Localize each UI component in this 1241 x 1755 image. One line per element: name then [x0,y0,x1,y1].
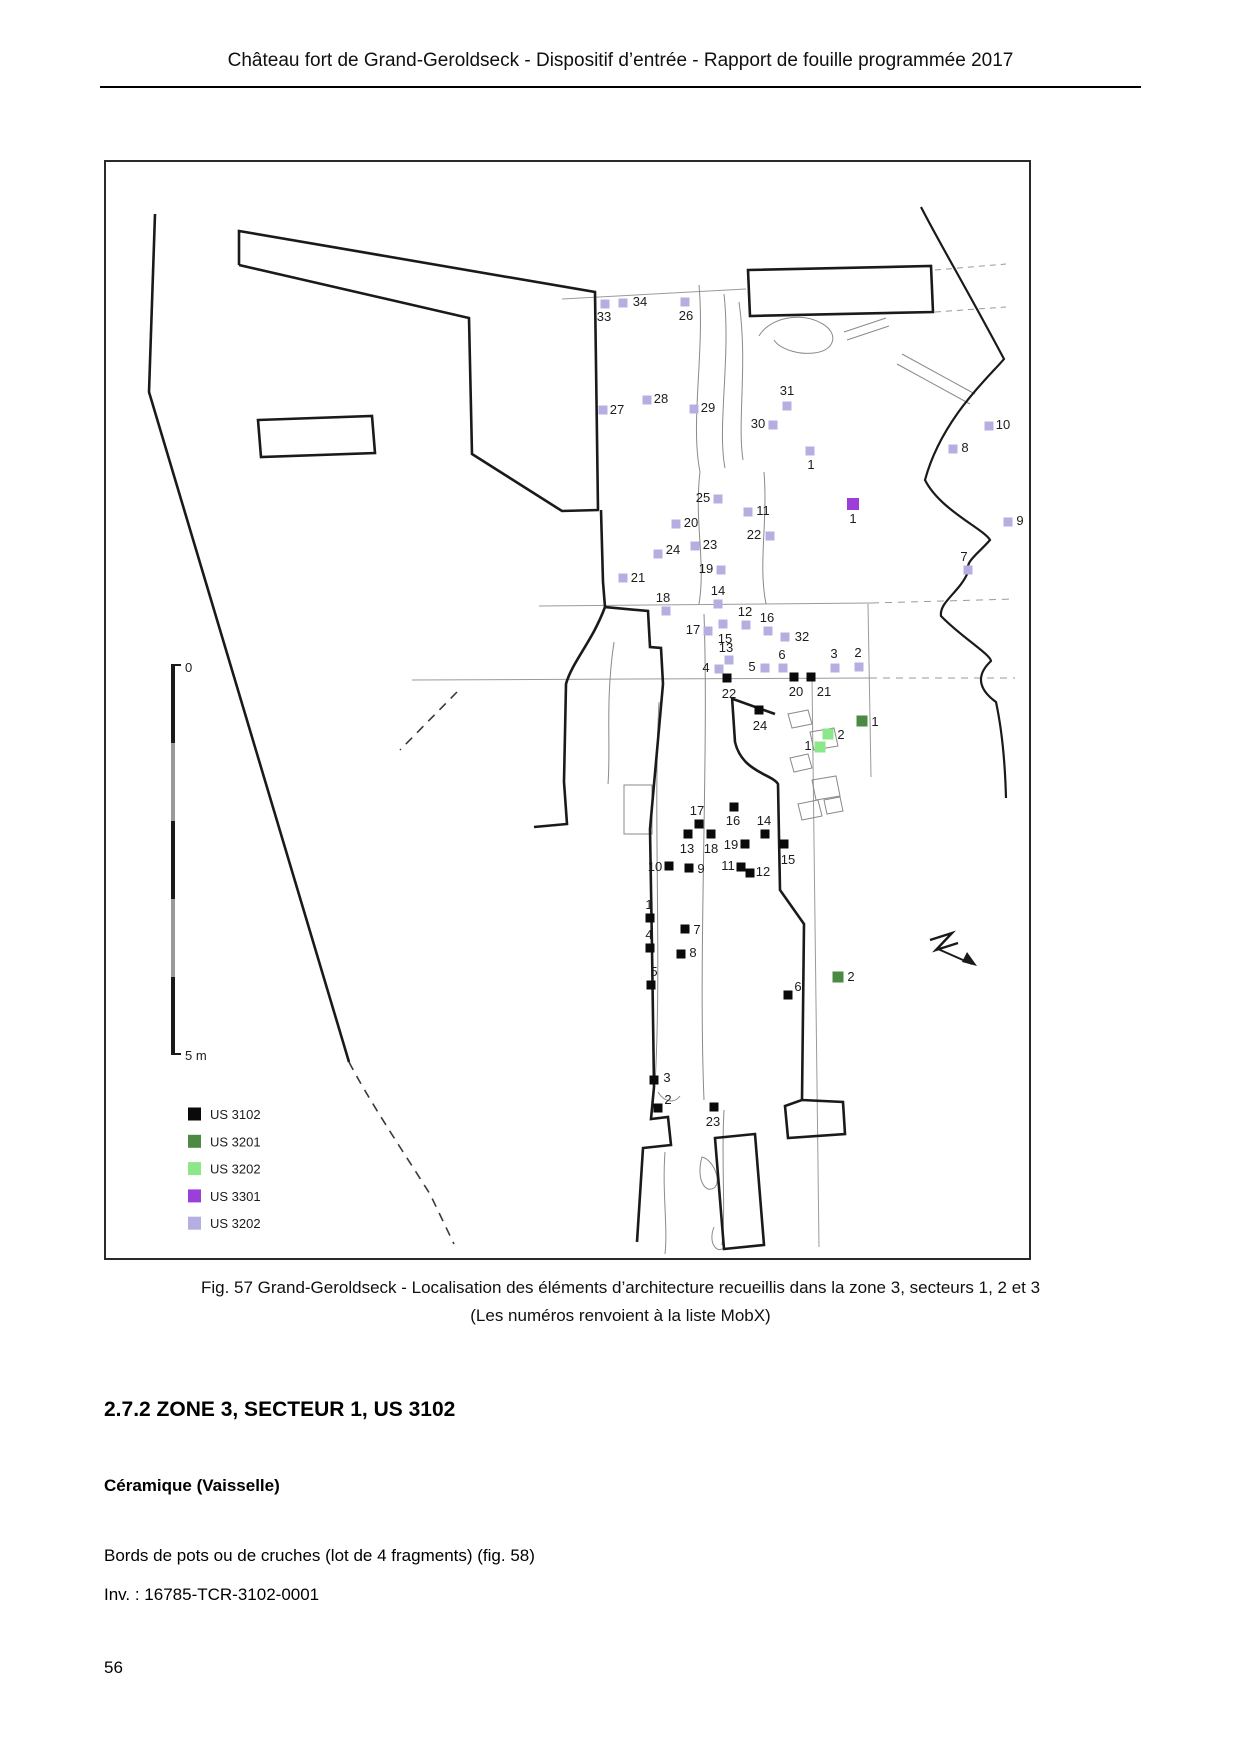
map-point-label: 26 [679,308,693,323]
map-point-label: 4 [645,927,652,942]
map-point-label: 11 [721,858,735,873]
map-point-label: 4 [702,660,709,675]
map-point-us3102 [665,862,674,871]
legend-swatch [188,1189,201,1202]
scale-5m-label: 5 m [185,1048,207,1063]
legend-label: US 3202 [210,1216,261,1231]
map-point-us3102 [790,673,799,682]
map-point-label: 1 [871,714,878,729]
map-point-label: 2 [837,727,844,742]
map-point-us3202l [681,298,690,307]
sub-heading: Céramique (Vaisselle) [104,1476,280,1496]
map-point-label: 12 [738,604,752,619]
map-point-us3202l [764,627,773,636]
map-point-label: 23 [703,537,717,552]
map-point-us3202l [949,445,958,454]
map-point-us3102 [677,950,686,959]
map-point-us3102 [681,925,690,934]
header-rule [100,86,1141,88]
map-point-label: 31 [780,383,794,398]
map-point-label: 17 [686,622,700,637]
dashed-walls [349,692,457,1244]
map-point-us3202l [619,574,628,583]
figure-caption-line1: Fig. 57 Grand-Geroldseck - Localisation … [80,1274,1161,1302]
map-point-us3202l [766,532,775,541]
map-point-us3102 [650,1076,659,1085]
north-arrow-icon [930,933,977,966]
map-point-us3202l [690,405,699,414]
map-point-us3102 [646,944,655,953]
map-point-label: 13 [680,841,694,856]
map-point-us3202l [717,566,726,575]
map-point-us3201 [857,716,868,727]
map-point-label: 24 [753,718,767,733]
map-point-us3202l [601,300,610,309]
map-point-label: 17 [690,803,704,818]
map-point-us3202l [742,621,751,630]
map-point-label: 18 [704,841,718,856]
map-point-us3202l [599,406,608,415]
legend-label: US 3301 [210,1189,261,1204]
map-point-label: 1 [804,738,811,753]
map-point-label: 3 [830,646,837,661]
map-point-us3202l [725,656,734,665]
map-point-us3102 [723,674,732,683]
map-point-us3102 [755,706,764,715]
map-point-label: 24 [666,542,680,557]
map-point-label: 21 [817,684,831,699]
map-point-label: 9 [697,861,704,876]
map-point-label: 5 [748,659,755,674]
map-point-us3202l [715,665,724,674]
map-point-us3202l [719,620,728,629]
legend-swatch [188,1217,201,1230]
map-point-label: 20 [789,684,803,699]
map-point-label: 30 [751,416,765,431]
map-point-us3202 [815,742,826,753]
map-point-us3202l [783,402,792,411]
map-point-us3202l [964,566,973,575]
scale-bar: 0 5 m [171,660,207,1063]
contour-lines [608,285,975,1254]
map-point-label: 10 [648,859,662,874]
map-point-us3102 [654,1104,663,1113]
map-point-us3102 [646,914,655,923]
map-point-label: 25 [696,490,710,505]
map-point-label: 7 [693,922,700,937]
excavation-plan-svg: 0 5 m US 3102US 3201US 3202US 3301US 320… [104,160,1035,1264]
legend-swatch [188,1162,201,1175]
map-point-label: 18 [656,590,670,605]
scale-zero-label: 0 [185,660,192,675]
map-point-label: 21 [631,570,645,585]
map-point-us3201 [833,972,844,983]
map-point-label: 15 [781,852,795,867]
map-point-label: 2 [847,969,854,984]
map-point-us3202l [704,627,713,636]
legend-label: US 3102 [210,1107,261,1122]
map-point-us3102 [737,863,746,872]
map-point-us3102 [707,830,716,839]
map-point-label: 29 [701,400,715,415]
map-point-label: 2 [854,645,861,660]
map-point-us3202l [691,542,700,551]
map-point-label: 8 [689,945,696,960]
map-point-us3301 [847,498,859,510]
section-heading: 2.7.2 ZONE 3, SECTEUR 1, US 3102 [104,1398,455,1422]
map-point-us3102 [685,864,694,873]
map-point-us3102 [784,991,793,1000]
map-point-us3202l [619,299,628,308]
map-point-us3102 [746,869,755,878]
map-point-us3202l [662,607,671,616]
map-point-label: 23 [706,1114,720,1129]
map-point-us3202l [855,663,864,672]
map-point-us3202l [714,600,723,609]
map-point-us3202l [714,495,723,504]
map-point-label: 34 [633,294,647,309]
legend-label: US 3202 [210,1162,261,1177]
map-point-label: 3 [663,1070,670,1085]
map-point-us3102 [647,981,656,990]
map-point-label: 1 [807,457,814,472]
map-point-label: 19 [699,561,713,576]
map-point-label: 7 [960,549,967,564]
map-point-label: 11 [756,503,770,518]
map-point-label: 33 [597,309,611,324]
map-point-label: 27 [610,402,624,417]
map-point-label: 8 [961,440,968,455]
map-point-us3102 [695,820,704,829]
map-point-label: 22 [722,686,736,701]
map-point-us3202 [823,729,834,740]
map-point-label: 14 [757,813,771,828]
page-number: 56 [104,1658,123,1678]
map-point-label: 16 [726,813,740,828]
map-point-us3202l [1004,518,1013,527]
map-point-us3202l [806,447,815,456]
inventory-number: Inv. : 16785-TCR-3102-0001 [104,1585,319,1605]
map-point-label: 1 [849,511,856,526]
legend-label: US 3201 [210,1134,261,1149]
map-point-us3202l [985,422,994,431]
map-point-label: 19 [724,837,738,852]
map-point-us3202l [781,633,790,642]
map-point-label: 2 [664,1092,671,1107]
map-point-us3102 [807,673,816,682]
map-point-us3102 [730,803,739,812]
map-point-label: 5 [650,964,657,979]
figure-caption-line2: (Les numéros renvoient à la liste MobX) [80,1302,1161,1330]
legend-swatch [188,1108,201,1121]
map-point-label: 10 [996,417,1010,432]
map-point-label: 1 [645,897,652,912]
map-point-us3202l [672,520,681,529]
map-point-label: 22 [747,527,761,542]
map-point-label: 6 [794,979,801,994]
map-point-us3102 [780,840,789,849]
map-point-label: 16 [760,610,774,625]
map-point-us3202l [643,396,652,405]
map-point-label: 9 [1016,513,1023,528]
map-point-label: 32 [795,629,809,644]
map-point-us3102 [684,830,693,839]
map-point-label: 20 [684,515,698,530]
map-point-us3102 [741,840,750,849]
map-point-label: 28 [654,391,668,406]
body-text-line1: Bords de pots ou de cruches (lot de 4 fr… [104,1546,535,1566]
report-header: Château fort de Grand-Geroldseck - Dispo… [0,50,1241,72]
map-point-us3202l [654,550,663,559]
map-legend: US 3102US 3201US 3202US 3301US 3202 [188,1107,261,1231]
map-point-label: 6 [778,647,785,662]
map-point-us3202l [779,664,788,673]
legend-swatch [188,1135,201,1148]
map-point-us3102 [761,830,770,839]
map-point-us3102 [710,1103,719,1112]
map-point-us3202l [831,664,840,673]
map-point-us3202l [761,664,770,673]
figure-57-map: 0 5 m US 3102US 3201US 3202US 3301US 320… [104,160,1031,1260]
map-point-label: 13 [719,640,733,655]
map-point-us3202l [744,508,753,517]
map-point-label: 14 [711,583,725,598]
map-point-us3202l [769,421,778,430]
map-point-label: 12 [756,864,770,879]
